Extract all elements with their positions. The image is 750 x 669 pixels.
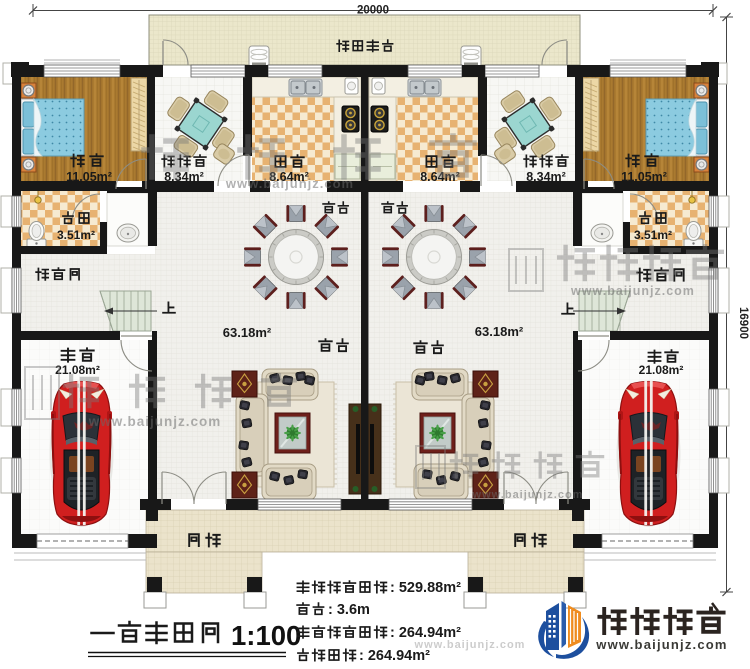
svg-text:11.05m²: 11.05m²	[621, 170, 667, 184]
svg-text:www.baijunjz.com: www.baijunjz.com	[472, 489, 584, 501]
svg-text:3.51m²: 3.51m²	[57, 228, 95, 242]
svg-text:21.08m²: 21.08m²	[55, 363, 100, 377]
svg-text:63.18m²: 63.18m²	[223, 325, 272, 340]
svg-text:www.baijunjz.com: www.baijunjz.com	[570, 284, 695, 298]
svg-text:www.baijunjz.com: www.baijunjz.com	[225, 176, 354, 191]
svg-text:1:100: 1:100	[231, 620, 301, 651]
svg-text:21.08m²: 21.08m²	[639, 363, 684, 377]
svg-text:16900: 16900	[737, 307, 749, 339]
svg-text:8.34m²: 8.34m²	[164, 170, 204, 184]
svg-text:www.baijunjz.com: www.baijunjz.com	[595, 637, 727, 652]
svg-text:: 264.94m²: : 264.94m²	[359, 648, 430, 664]
svg-text:www.baijunjz.com: www.baijunjz.com	[88, 414, 222, 429]
svg-text:: 3.6m: : 3.6m	[328, 602, 370, 618]
svg-text:11.05m²: 11.05m²	[66, 170, 112, 184]
svg-text:8.34m²: 8.34m²	[526, 170, 566, 184]
svg-text:: 529.88m²: : 529.88m²	[390, 580, 461, 596]
svg-text:: 264.94m²: : 264.94m²	[390, 625, 461, 641]
svg-text:63.18m²: 63.18m²	[475, 324, 524, 339]
svg-text:3.51m²: 3.51m²	[634, 228, 672, 242]
